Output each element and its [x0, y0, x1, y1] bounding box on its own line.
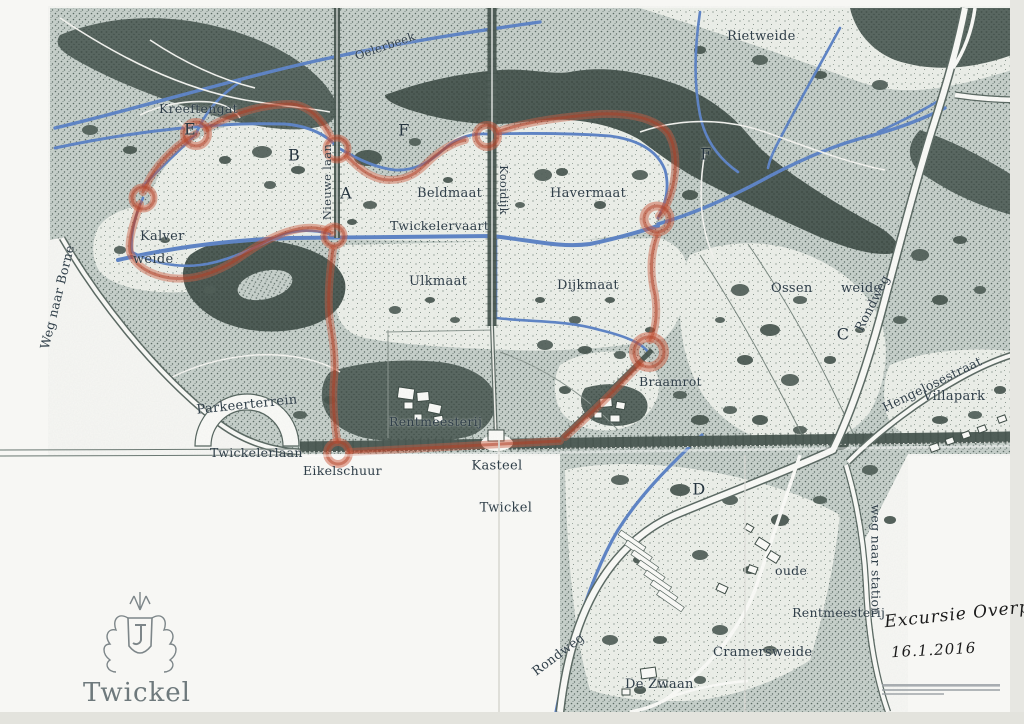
- label-dijkmaat: Dijkmaat: [557, 278, 619, 293]
- label-rentmeesterij: Rentmeesterij: [389, 414, 482, 429]
- label-hengelosestraat: Hengelosestraat: [880, 353, 984, 414]
- logo-wordmark: Twickel: [83, 678, 191, 708]
- label-kooidijk: Kooidijk: [497, 165, 511, 215]
- label-twickelervaart: Twickelervaart: [390, 218, 489, 233]
- label-ulkmaat: Ulkmaat: [409, 274, 467, 289]
- label-de-zwaan: De Zwaan: [625, 677, 694, 692]
- label-nieuwe-laan: Nieuwe laan: [320, 144, 334, 220]
- handwritten-date: 16.1.2016: [891, 639, 977, 661]
- label-oude-rentmeesterij: oude Rentmeesterij: [775, 560, 885, 623]
- label-kalverweide-2: weide: [133, 252, 174, 267]
- label-cramersweide: Cramersweide: [713, 645, 812, 660]
- route-marker-b: B: [288, 146, 300, 165]
- label-kasteel-line2: Twickel: [480, 501, 533, 516]
- label-rondweg-s: Rondweg: [529, 630, 587, 679]
- route-marker-a: A: [340, 184, 352, 203]
- label-havermaat: Havermaat: [550, 186, 626, 201]
- route-marker-c: C: [837, 325, 850, 344]
- route-marker-f-north: F: [398, 121, 409, 140]
- label-rietweide: Rietweide: [727, 29, 796, 44]
- route-marker-e: E: [184, 120, 196, 139]
- label-parkeerterrein: Parkeerterrein: [196, 392, 298, 418]
- handwritten-title: Excursie Overpark: [883, 594, 1024, 633]
- label-braamrot: Braamrot: [639, 374, 702, 389]
- label-oude-rm-line2: Rentmeesterij: [792, 605, 885, 620]
- label-eikelschuur: Eikelschuur: [303, 463, 382, 478]
- label-ossenweide: Ossen weide: [771, 281, 882, 296]
- label-kasteel-line1: Kasteel: [471, 459, 522, 474]
- label-kreeftengat: Kreeftengat: [159, 101, 238, 116]
- label-kasteel-twickel: Kasteel Twickel: [462, 456, 532, 519]
- route-marker-d: D: [692, 480, 705, 499]
- label-weg-naar-borne: Weg naar Borne: [37, 244, 77, 351]
- label-kalverweide-1: Kalver: [140, 229, 185, 244]
- label-beldmaat: Beldmaat: [417, 186, 482, 201]
- scanned-estate-map: Rietweide Kreeftengat Beldmaat Havermaat…: [0, 0, 1024, 724]
- label-twickelerlaan: Twickelerlaan: [210, 445, 303, 460]
- label-oude-rm-line1: oude: [775, 563, 807, 578]
- label-oelerbeek: Oelerbeek: [353, 29, 417, 63]
- route-marker-f-east: F: [700, 145, 711, 164]
